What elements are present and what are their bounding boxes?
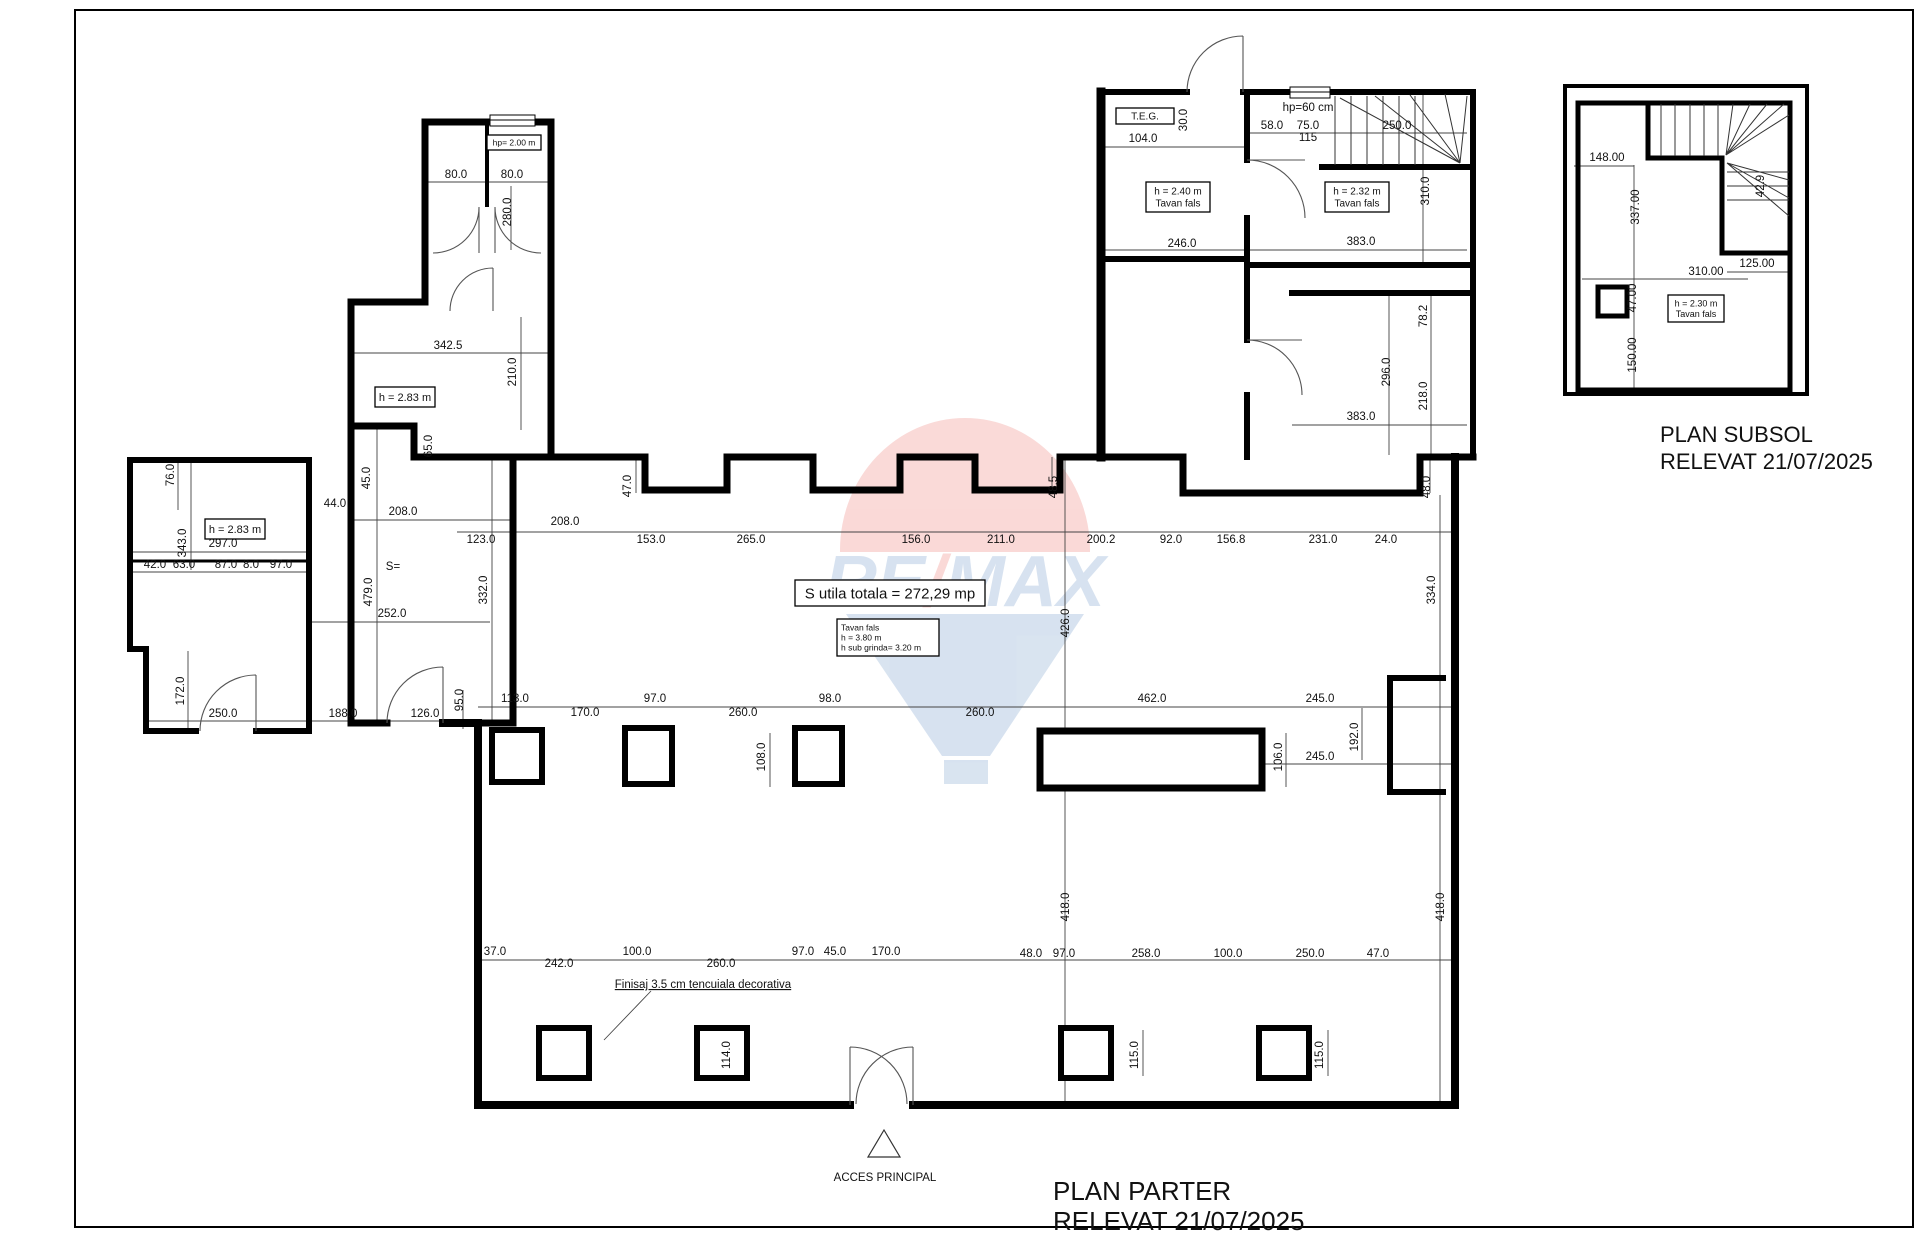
- dim-label: 242.0: [545, 958, 574, 970]
- dim-label: 48.0: [1421, 476, 1433, 498]
- pillars: [492, 728, 1309, 1078]
- dim-label: 258.0: [1132, 948, 1161, 960]
- dim-label: 98.0: [819, 693, 841, 705]
- dim-label: 97.0: [1053, 948, 1075, 960]
- dim-label: 332.0: [478, 576, 490, 605]
- dim-label: 47.00: [1627, 284, 1639, 313]
- label-box-text: S utila totala = 272,29 mp: [805, 585, 976, 602]
- dim-label: 115.0: [1129, 1041, 1141, 1069]
- plan-parter-date: RELEVAT 21/07/2025: [1053, 1206, 1305, 1236]
- dim-label: 76.0: [165, 464, 177, 486]
- label-box-text: Tavan fals: [1334, 199, 1379, 210]
- dim-label: 97.0: [792, 946, 814, 958]
- dim-label: 30.0: [1178, 109, 1190, 131]
- dim-label: 337.00: [1630, 189, 1642, 224]
- dim-label: 170.0: [571, 707, 600, 719]
- dim-label: 260.0: [966, 707, 995, 719]
- dim-label: 125.00: [1739, 258, 1774, 270]
- dim-label: 126.0: [411, 708, 440, 720]
- dim-label: 250.0: [1296, 948, 1325, 960]
- dim-label: 418.0: [1435, 893, 1447, 922]
- dim-label: 334.0: [1426, 576, 1438, 605]
- label-box-text: h = 2.83 m: [209, 524, 261, 536]
- dim-label: 265.0: [737, 534, 766, 546]
- acces-principal-label: ACCES PRINCIPAL: [834, 1172, 937, 1184]
- dim-label: 208.0: [389, 506, 418, 518]
- dim-label: 150.00: [1627, 337, 1639, 372]
- dim-label: 192.0: [1349, 723, 1361, 752]
- label-box-text: h = 2.83 m: [379, 392, 431, 404]
- dim-label: 45.0: [824, 946, 846, 958]
- dim-label: 48.0: [1020, 948, 1042, 960]
- dim-label: 170.0: [872, 946, 901, 958]
- dim-label: 65.0: [423, 435, 435, 457]
- dim-label: 113.0: [501, 693, 529, 705]
- dim-label: 42.9: [1755, 175, 1767, 197]
- dim-label: 245.0: [1306, 751, 1335, 763]
- dim-label: 24.0: [1375, 534, 1397, 546]
- dim-label: 106.0: [1273, 743, 1285, 772]
- dim-label: 260.0: [729, 707, 758, 719]
- finisaj-leader: [604, 991, 651, 1040]
- dim-label: 211.0: [987, 534, 1015, 546]
- label-box-text: h = 2.30 m: [1675, 298, 1718, 308]
- entrance-door-right: [856, 1047, 913, 1105]
- plan-subsol-inset: [1565, 86, 1807, 394]
- dim-label: 58.0: [1261, 120, 1283, 132]
- dim-label: 48.5: [1048, 476, 1060, 498]
- dim-label: 156.0: [902, 534, 931, 546]
- entrance-door-left: [850, 1047, 907, 1105]
- label-box-text: h = 2.40 m: [1154, 187, 1202, 198]
- dim-label: 92.0: [1160, 534, 1182, 546]
- label-box-text: h = 3.80 m: [841, 633, 881, 643]
- dim-label: 280.0: [502, 198, 514, 227]
- dim-label: 45.0: [361, 467, 373, 489]
- dim-label: 383.0: [1347, 236, 1376, 248]
- dim-label: 114.0: [721, 1041, 733, 1069]
- dim-label: 47.0: [622, 475, 634, 497]
- dim-label: 479.0: [363, 578, 375, 607]
- dim-label: 426.0: [1060, 609, 1072, 638]
- plan-parter-title: PLAN PARTER: [1053, 1176, 1231, 1206]
- dim-label: 252.0: [378, 608, 407, 620]
- dim-label: 78.2: [1418, 305, 1430, 327]
- dim-label: 418.0: [1060, 893, 1072, 922]
- dim-label: 297.0: [209, 538, 238, 550]
- label-box-text: T.E.G.: [1131, 112, 1159, 123]
- label-box-text: h = 2.32 m: [1333, 187, 1381, 198]
- dim-label: 208.0: [551, 516, 580, 528]
- dim-label: 260.0: [707, 958, 736, 970]
- dim-label: 80.0: [501, 169, 523, 181]
- dim-label: 153.0: [637, 534, 666, 546]
- finisaj-note: Finisaj 3.5 cm tencuiala decorativa: [615, 979, 792, 991]
- dim-label: 156.8: [1217, 534, 1246, 546]
- dim-label: 310.00: [1688, 266, 1723, 278]
- dim-label: 383.0: [1347, 411, 1376, 423]
- dim-label: 462.0: [1138, 693, 1167, 705]
- dim-label: 75.0: [1297, 120, 1319, 132]
- label-box-text: Tavan fals: [841, 623, 879, 633]
- balloon-basket: [944, 760, 988, 784]
- dim-label: 104.0: [1129, 133, 1158, 145]
- dim-label: 44.0: [324, 498, 346, 510]
- dim-label: 100.0: [1214, 948, 1243, 960]
- dim-label: 115.0: [1314, 1041, 1326, 1069]
- dim-label: 245.0: [1306, 693, 1335, 705]
- label-box-text: Tavan fals: [1155, 199, 1200, 210]
- dim-label: 231.0: [1309, 534, 1338, 546]
- dim-label: 296.0: [1381, 358, 1393, 387]
- dim-label: 95.0: [454, 689, 466, 711]
- dim-label: 310.0: [1420, 177, 1432, 206]
- dim-label: 63.0: [173, 559, 195, 571]
- dim-label: 172.0: [175, 677, 187, 706]
- dim-label: 8.0: [243, 559, 259, 571]
- label-box-text: Tavan fals: [1676, 309, 1717, 319]
- dim-label: hp=60 cm: [1283, 102, 1334, 114]
- dim-label: 47.0: [1367, 948, 1389, 960]
- dim-label: 188.0: [329, 708, 358, 720]
- dim-label: 97.0: [644, 693, 666, 705]
- dim-label: 342.5: [434, 340, 463, 352]
- dim-label: 148.00: [1589, 152, 1624, 164]
- label-box-text: h sub grinda= 3.20 m: [841, 643, 921, 653]
- entrance-triangle: [868, 1130, 900, 1157]
- dim-label: 115: [1299, 132, 1317, 144]
- floor-plan-drawing: RE/MAX: [0, 0, 1920, 1237]
- dim-label: 80.0: [445, 169, 467, 181]
- plan-subsol-date: RELEVAT 21/07/2025: [1660, 449, 1873, 474]
- dim-label: 42.0: [144, 559, 166, 571]
- dim-label: 250.0: [209, 708, 238, 720]
- floor-plan-page: RE/MAX: [0, 0, 1920, 1237]
- dim-label: S=: [386, 561, 401, 573]
- dim-label: 37.0: [484, 946, 506, 958]
- label-box-text: hp= 2.00 m: [493, 138, 536, 148]
- dim-label: 343.0: [177, 529, 189, 558]
- dim-label: 100.0: [623, 946, 652, 958]
- dim-label: 246.0: [1168, 238, 1197, 250]
- dim-label: 108.0: [756, 743, 768, 772]
- dim-label: 87.0: [215, 559, 237, 571]
- plan-subsol-title: PLAN SUBSOL: [1660, 422, 1813, 447]
- dim-label: 250.0: [1383, 120, 1412, 132]
- subsol-pillar: [1598, 287, 1627, 316]
- counter-island: [1040, 731, 1262, 788]
- dim-label: 200.2: [1087, 534, 1116, 546]
- doors: [200, 36, 1305, 1105]
- dim-label: 97.0: [270, 559, 292, 571]
- dim-label: 123.0: [467, 534, 496, 546]
- dim-label: 210.0: [507, 358, 519, 387]
- dim-label: 218.0: [1418, 382, 1430, 411]
